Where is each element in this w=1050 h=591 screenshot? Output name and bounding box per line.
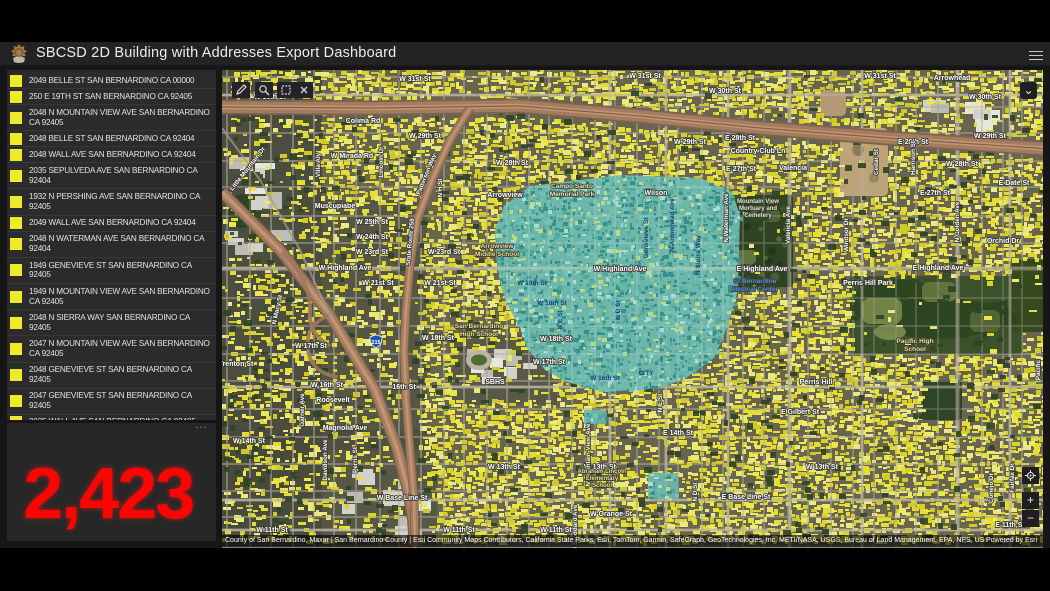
svg-text:Mountain View: Mountain View xyxy=(737,199,779,205)
svg-text:N D St: N D St xyxy=(692,482,699,502)
svg-text:W Mirada Rd: W Mirada Rd xyxy=(331,153,373,160)
svg-text:W Base Line St: W Base Line St xyxy=(377,495,428,502)
svg-text:Garner Ave: Garner Ave xyxy=(299,393,306,427)
svg-text:N E St: N E St xyxy=(657,393,664,412)
svg-text:St Bernardine: St Bernardine xyxy=(734,278,777,285)
svg-text:E 14th St: E 14th St xyxy=(663,430,694,437)
svg-text:CITY: CITY xyxy=(639,370,654,377)
svg-text:Orchid Dr: Orchid Dr xyxy=(987,238,1020,245)
svg-text:W 16th St: W 16th St xyxy=(311,382,344,389)
svg-text:W 18th St: W 18th St xyxy=(537,300,567,307)
svg-text:Wilson: Wilson xyxy=(645,190,668,197)
svg-text:N D St: N D St xyxy=(615,299,622,319)
svg-text:W 23rd St: W 23rd St xyxy=(356,249,389,256)
svg-text:W Highland Ave: W Highland Ave xyxy=(594,266,647,273)
svg-text:W 11th St: W 11th St xyxy=(443,527,475,534)
svg-text:Mortuary and: Mortuary and xyxy=(739,206,777,212)
svg-text:W Orange St: W Orange St xyxy=(590,511,633,518)
svg-text:W 11th St: W 11th St xyxy=(540,527,572,534)
svg-text:W 18th St: W 18th St xyxy=(422,335,455,342)
svg-text:Perris St: Perris St xyxy=(352,446,359,473)
svg-text:SBHS: SBHS xyxy=(485,379,505,386)
svg-text:Conejo Dr: Conejo Dr xyxy=(988,472,995,503)
svg-text:Trenton St: Trenton St xyxy=(222,361,254,368)
svg-text:W 31st St: W 31st St xyxy=(864,73,896,80)
svg-text:San Bernardino: San Bernardino xyxy=(455,323,503,330)
svg-text:E Highland Ave: E Highland Ave xyxy=(913,265,964,272)
svg-text:W 29th St: W 29th St xyxy=(409,133,442,140)
svg-text:E Base Line St: E Base Line St xyxy=(722,494,771,501)
svg-text:16th St: 16th St xyxy=(392,384,416,391)
svg-text:Perris Hill: Perris Hill xyxy=(800,379,833,386)
svg-text:Colima Rd: Colima Rd xyxy=(346,118,381,125)
svg-text:E Date St: E Date St xyxy=(999,180,1030,187)
svg-text:W 30th St: W 30th St xyxy=(969,94,1002,101)
svg-text:E 27th St: E 27th St xyxy=(920,190,951,197)
svg-text:Windsor Dr: Windsor Dr xyxy=(843,218,850,252)
svg-text:Middle School: Middle School xyxy=(475,251,519,258)
svg-text:E Highland Ave: E Highland Ave xyxy=(737,266,788,273)
svg-text:Perris Hill Park: Perris Hill Park xyxy=(843,280,893,287)
svg-text:N Golden Ave: N Golden Ave xyxy=(954,201,961,242)
svg-text:W 14th St: W 14th St xyxy=(233,438,266,445)
svg-text:Arrowhead: Arrowhead xyxy=(934,75,971,82)
svg-text:Abraham Lincoln: Abraham Lincoln xyxy=(577,469,626,475)
svg-text:Valencia: Valencia xyxy=(779,165,807,172)
svg-text:Roosevelt: Roosevelt xyxy=(316,397,350,404)
svg-text:E Gilbert St: E Gilbert St xyxy=(781,409,820,416)
svg-text:W 31st St: W 31st St xyxy=(629,73,661,80)
svg-text:N Sierra Way: N Sierra Way xyxy=(695,235,702,275)
svg-text:E 28th St: E 28th St xyxy=(725,135,756,142)
svg-text:W 11th St: W 11th St xyxy=(256,527,288,534)
svg-text:215: 215 xyxy=(371,340,380,346)
svg-text:Country Club Ln: Country Club Ln xyxy=(731,148,786,155)
svg-text:Cemetery: Cemetery xyxy=(744,213,772,219)
svg-text:Davidson Ave: Davidson Ave xyxy=(322,439,329,481)
svg-text:W 24th St: W 24th St xyxy=(356,234,389,241)
svg-text:Arrowview: Arrowview xyxy=(481,243,515,250)
svg-text:Magnolia Ave: Magnolia Ave xyxy=(323,425,368,432)
svg-text:W 25th St: W 25th St xyxy=(356,219,389,226)
svg-text:W 21st St: W 21st St xyxy=(362,280,394,287)
svg-text:W 28th St: W 28th St xyxy=(496,160,529,167)
svg-text:W 21st St: W 21st St xyxy=(424,280,456,287)
svg-text:W 23rd St: W 23rd St xyxy=(428,249,461,256)
svg-text:E 27th St: E 27th St xyxy=(726,166,757,173)
svg-text:Memorial Park: Memorial Park xyxy=(550,191,595,198)
svg-text:W Highland Ave: W Highland Ave xyxy=(319,265,372,272)
svg-text:W 18th St: W 18th St xyxy=(540,336,573,343)
svg-text:School: School xyxy=(592,483,612,489)
svg-text:W 31st St: W 31st St xyxy=(399,76,431,83)
svg-text:Harrison St: Harrison St xyxy=(910,140,917,175)
svg-text:W 17th St: W 17th St xyxy=(295,343,328,350)
svg-text:Medical Center: Medical Center xyxy=(732,286,779,293)
svg-text:Arrowview: Arrowview xyxy=(487,192,523,199)
svg-text:W 28th St: W 28th St xyxy=(946,161,979,168)
svg-text:School: School xyxy=(904,346,926,353)
svg-text:Pacific High: Pacific High xyxy=(896,338,933,345)
svg-text:Campo Santo: Campo Santo xyxy=(551,183,593,190)
svg-text:W 19th St: W 19th St xyxy=(517,280,547,287)
svg-text:N H St: N H St xyxy=(437,178,444,198)
svg-text:N Arrowhead Ave: N Arrowhead Ave xyxy=(669,198,676,252)
svg-text:Elementary: Elementary xyxy=(586,476,619,482)
svg-text:W 30th St: W 30th St xyxy=(709,88,742,95)
svg-text:Genevieve St: Genevieve St xyxy=(643,217,650,259)
svg-text:E 11th St: E 11th St xyxy=(995,522,1025,529)
svg-text:W 16th St: W 16th St xyxy=(590,375,620,382)
svg-text:N E St: N E St xyxy=(557,310,564,330)
svg-text:Fairfax Dr: Fairfax Dr xyxy=(1009,463,1016,493)
svg-text:Pacific: Pacific xyxy=(1035,359,1042,380)
svg-text:W 17th St: W 17th St xyxy=(533,359,566,366)
svg-text:N Waterman Ave: N Waterman Ave xyxy=(723,193,730,243)
svg-text:Muscupiabe: Muscupiabe xyxy=(315,203,356,210)
svg-text:W 29th St: W 29th St xyxy=(674,139,707,146)
svg-text:Lincoln Dr: Lincoln Dr xyxy=(378,146,385,178)
svg-text:Cedar St: Cedar St xyxy=(873,148,880,175)
svg-text:High School: High School xyxy=(460,331,498,338)
svg-text:Valencia Ave: Valencia Ave xyxy=(785,205,792,244)
svg-text:Villa Aly: Villa Aly xyxy=(315,152,322,177)
svg-text:W 13th St: W 13th St xyxy=(806,464,839,471)
svg-text:W 29th St: W 29th St xyxy=(974,133,1007,140)
svg-text:W 13th St: W 13th St xyxy=(488,464,521,471)
